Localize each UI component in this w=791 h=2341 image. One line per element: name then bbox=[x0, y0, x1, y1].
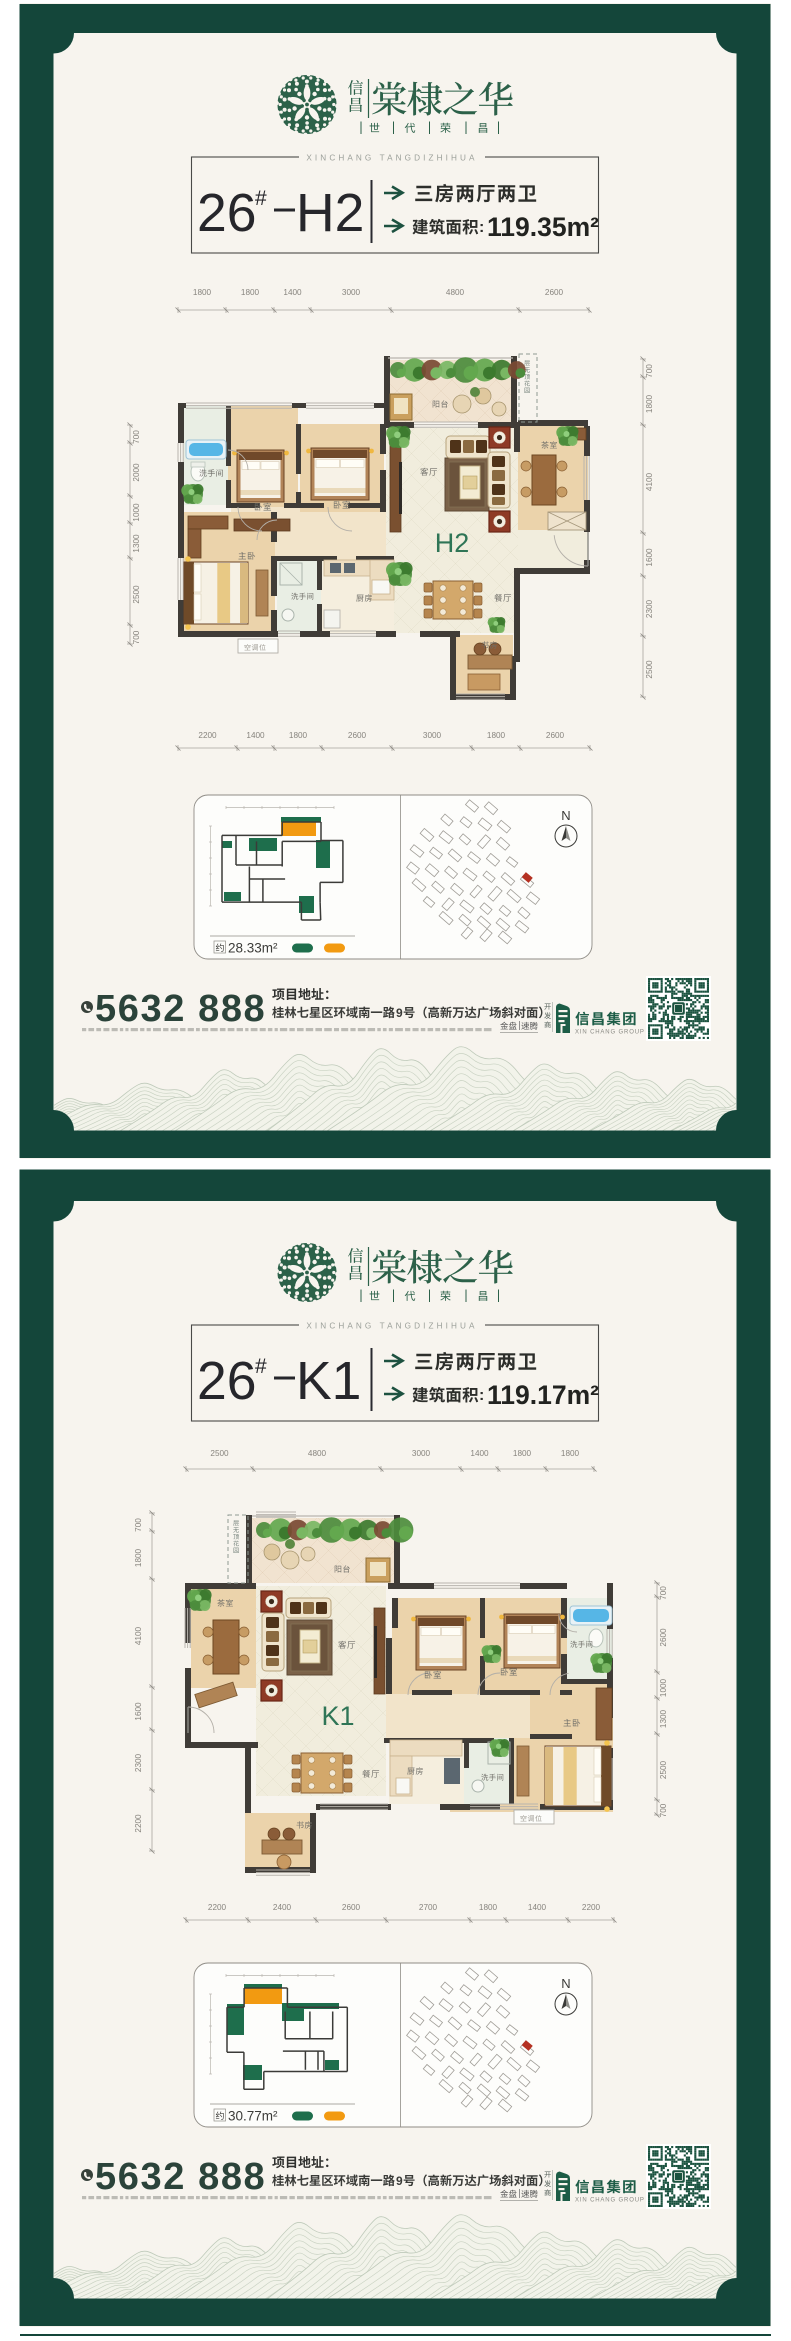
svg-text:XIN CHANG GROUP: XIN CHANG GROUP bbox=[575, 2198, 645, 2204]
svg-text:2600: 2600 bbox=[545, 288, 564, 297]
svg-text:1400: 1400 bbox=[283, 288, 302, 297]
svg-text:#: # bbox=[255, 187, 267, 210]
svg-text::: : bbox=[479, 219, 484, 236]
svg-text:9: 9 bbox=[396, 1006, 403, 1020]
svg-text:4800: 4800 bbox=[308, 1449, 327, 1458]
svg-text:700: 700 bbox=[134, 1518, 143, 1532]
svg-text:5632 888: 5632 888 bbox=[95, 2156, 266, 2198]
svg-text:2400: 2400 bbox=[273, 1903, 292, 1912]
svg-text:4100: 4100 bbox=[645, 472, 654, 491]
svg-text:1800: 1800 bbox=[513, 1449, 532, 1458]
svg-text:700: 700 bbox=[659, 1586, 668, 1600]
svg-text:XIN CHANG GROUP: XIN CHANG GROUP bbox=[575, 1030, 645, 1036]
svg-text:2300: 2300 bbox=[645, 599, 654, 618]
svg-text:700: 700 bbox=[645, 364, 654, 378]
svg-text:1800: 1800 bbox=[193, 288, 212, 297]
svg-text:1300: 1300 bbox=[659, 1709, 668, 1728]
svg-text:K1: K1 bbox=[296, 1352, 361, 1411]
svg-text:1800: 1800 bbox=[487, 731, 506, 740]
svg-text:H2: H2 bbox=[296, 184, 364, 243]
svg-text:1800: 1800 bbox=[645, 394, 654, 413]
svg-text:4800: 4800 bbox=[446, 288, 465, 297]
svg-text:1800: 1800 bbox=[479, 1903, 498, 1912]
svg-text:119.17m²: 119.17m² bbox=[487, 1380, 599, 1410]
svg-text:700: 700 bbox=[659, 1803, 668, 1817]
svg-text:2500: 2500 bbox=[659, 1760, 668, 1779]
svg-text:2600: 2600 bbox=[348, 731, 367, 740]
svg-text:700: 700 bbox=[132, 430, 141, 444]
svg-text:1000: 1000 bbox=[132, 503, 141, 522]
svg-text:2300: 2300 bbox=[134, 1753, 143, 1772]
svg-text:4100: 4100 bbox=[134, 1626, 143, 1645]
svg-text:2700: 2700 bbox=[419, 1903, 438, 1912]
svg-text:1600: 1600 bbox=[645, 548, 654, 567]
svg-text:XINCHANG TANGDIZHIHUA: XINCHANG TANGDIZHIHUA bbox=[306, 154, 477, 163]
svg-text:2500: 2500 bbox=[132, 585, 141, 604]
svg-text:119.35m²: 119.35m² bbox=[487, 212, 599, 242]
svg-text:3000: 3000 bbox=[423, 731, 442, 740]
svg-text:1400: 1400 bbox=[246, 731, 265, 740]
svg-text:26: 26 bbox=[197, 184, 257, 243]
svg-text:2200: 2200 bbox=[208, 1903, 227, 1912]
svg-text:2500: 2500 bbox=[210, 1449, 229, 1458]
svg-text:2600: 2600 bbox=[659, 1628, 668, 1647]
svg-text:2200: 2200 bbox=[198, 731, 217, 740]
svg-text:XINCHANG TANGDIZHIHUA: XINCHANG TANGDIZHIHUA bbox=[306, 1322, 477, 1331]
svg-text:26: 26 bbox=[197, 1352, 257, 1411]
svg-text:1800: 1800 bbox=[241, 288, 260, 297]
svg-text::: : bbox=[479, 1387, 484, 1404]
svg-text:H2: H2 bbox=[435, 528, 470, 558]
svg-text:3000: 3000 bbox=[412, 1449, 431, 1458]
svg-text:2500: 2500 bbox=[645, 660, 654, 679]
svg-text:1000: 1000 bbox=[659, 1678, 668, 1697]
svg-text:1800: 1800 bbox=[289, 731, 308, 740]
svg-text:1400: 1400 bbox=[470, 1449, 489, 1458]
svg-text:30.77m²: 30.77m² bbox=[228, 2109, 278, 2124]
svg-text:#: # bbox=[255, 1355, 267, 1378]
svg-text:9: 9 bbox=[396, 2174, 403, 2188]
svg-text:N: N bbox=[561, 808, 570, 823]
svg-text:1800: 1800 bbox=[134, 1548, 143, 1567]
svg-text:1800: 1800 bbox=[561, 1449, 580, 1458]
svg-text:3000: 3000 bbox=[342, 288, 361, 297]
svg-text:1400: 1400 bbox=[528, 1903, 547, 1912]
svg-text:28.33m²: 28.33m² bbox=[228, 941, 278, 956]
svg-text:K1: K1 bbox=[321, 1701, 354, 1731]
svg-text:2200: 2200 bbox=[582, 1903, 601, 1912]
svg-text:2000: 2000 bbox=[132, 463, 141, 482]
svg-text:1300: 1300 bbox=[132, 534, 141, 553]
svg-text:1600: 1600 bbox=[134, 1702, 143, 1721]
svg-text:700: 700 bbox=[132, 630, 141, 644]
svg-text:2200: 2200 bbox=[134, 1814, 143, 1833]
svg-text:2600: 2600 bbox=[342, 1903, 361, 1912]
svg-text:5632 888: 5632 888 bbox=[95, 988, 266, 1030]
svg-text:N: N bbox=[561, 1976, 570, 1991]
svg-text:2600: 2600 bbox=[546, 731, 565, 740]
